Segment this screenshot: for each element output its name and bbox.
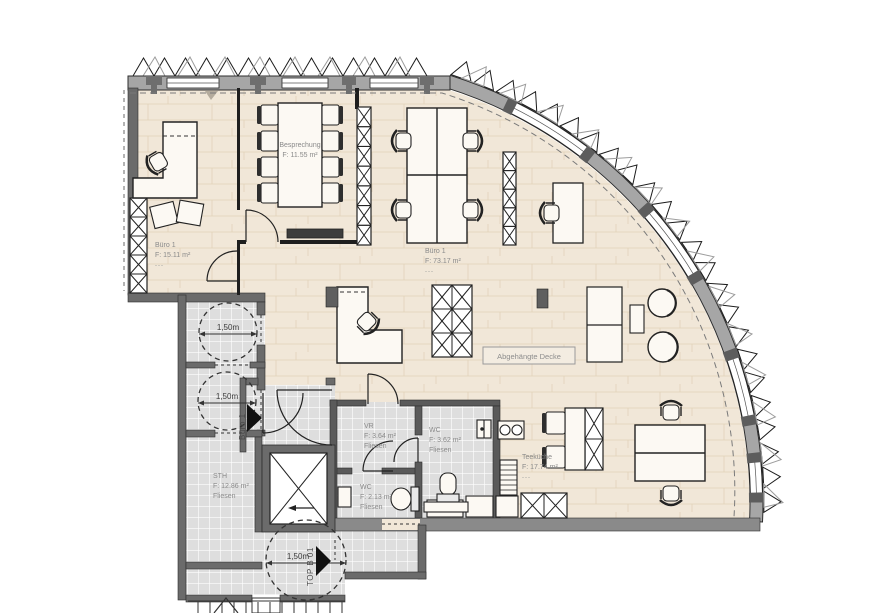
- room-label-besprechung-area: F: 11.55 m²: [282, 152, 318, 159]
- room-label-besprechung-name: Besprechung: [279, 142, 320, 149]
- room-label-vr-floor: Fliesen: [364, 443, 387, 450]
- room-label-sth-floor: Fliesen: [213, 493, 236, 500]
- room-label-buero1-large-area: F: 73.17 m²: [425, 258, 461, 265]
- turning-radius-label: 1,50m: [217, 323, 240, 332]
- room-label-wc-large-name: WC: [429, 427, 441, 434]
- room-label-wc-large-area: F: 3.62 m²: [429, 437, 462, 444]
- ceiling-label: Abgehängte Decke: [497, 352, 561, 361]
- room-note: ---: [522, 475, 531, 481]
- column: [537, 289, 548, 308]
- entrance-top-label: TOP B 01: [306, 547, 315, 586]
- room-label-vr-area: F: 3.64 m²: [364, 433, 397, 440]
- room-label-wc-small-area: F: 2.13 m²: [360, 494, 393, 501]
- turning-radius-label: 1,50m: [216, 392, 239, 401]
- side-table: [587, 287, 622, 362]
- sink-icon: [338, 487, 351, 507]
- floor-plan-canvas: Büro 1 F: 15.11 m² --- Besprechung F: 11…: [0, 0, 869, 613]
- tile-floor-bottom-corridor2: [186, 569, 262, 595]
- room-label-buero1-small-area: F: 15.11 m²: [155, 252, 191, 259]
- entrance-unit-label: Büro 1: [238, 413, 247, 440]
- column: [326, 287, 338, 307]
- kitchen-table: [565, 408, 585, 470]
- room-note: ---: [425, 269, 434, 275]
- sideboard: [287, 229, 343, 238]
- appliance-icon: [500, 460, 517, 495]
- desk-cluster-2: [635, 425, 705, 481]
- room-note: ---: [155, 263, 164, 269]
- room-label-teekueche-area: F: 17.74 m²: [522, 464, 558, 471]
- room-label-wc-small-name: WC: [360, 484, 372, 491]
- room-label-sth-area: F: 12.86 m²: [213, 483, 249, 490]
- room-label-wc-small-floor: Fliesen: [360, 504, 383, 511]
- room-label-wc-large-floor: Fliesen: [429, 447, 452, 454]
- coffee-table: [630, 305, 644, 333]
- toilet-icon: [391, 487, 419, 511]
- tile-floor-sth: [186, 435, 262, 568]
- room-label-sth-name: STH: [213, 473, 227, 480]
- room-label-teekueche-name: Teeküche: [522, 454, 552, 461]
- tile-floor-corridor-b: [345, 530, 418, 572]
- sink-double-icon: [498, 421, 524, 439]
- room-label-buero1-large-name: Büro 1: [425, 248, 446, 255]
- floor-plan-svg: Büro 1 F: 15.11 m² --- Besprechung F: 11…: [0, 0, 869, 613]
- room-label-buero1-small-name: Büro 1: [155, 242, 176, 249]
- cabinet-icon: [477, 420, 491, 438]
- desk-cluster-2x2: [407, 108, 467, 243]
- elevator-icon: [262, 445, 335, 532]
- room-label-vr-name: VR: [364, 423, 374, 430]
